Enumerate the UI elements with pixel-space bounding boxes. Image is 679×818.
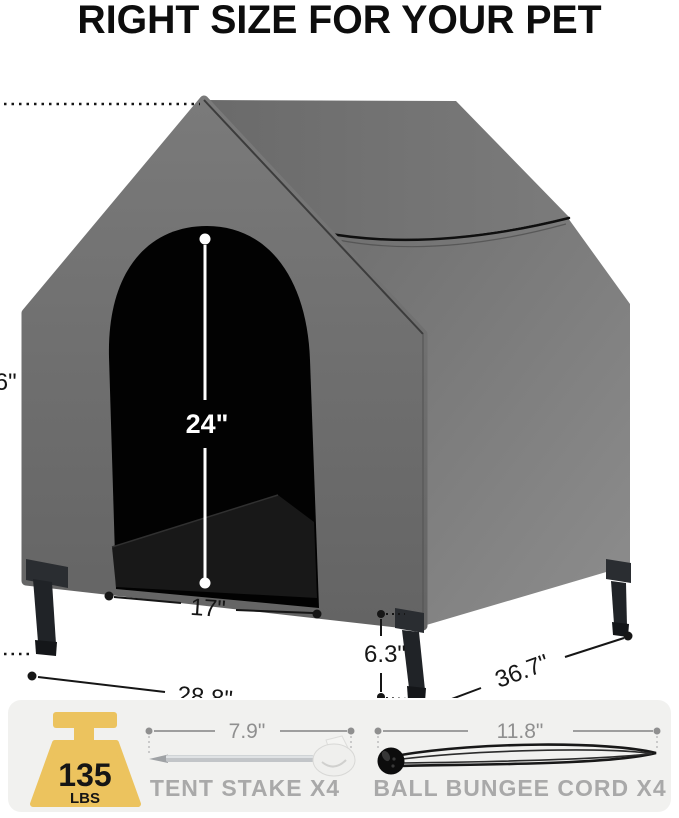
- tent-stake-label: TENT STAKE X4: [150, 775, 340, 801]
- weight-capacity-value: 135: [58, 757, 111, 793]
- bungee-cord-figure: 11.8" BALL BUNGEE CORD X4: [373, 720, 666, 801]
- pet-house: 40.6" 24" 17" 6.3": [0, 100, 633, 699]
- bungee-cord-icon: [378, 745, 657, 775]
- bungee-length: 11.8": [497, 720, 544, 743]
- tent-stake-figure: 7.9" TENT STAKE X4: [146, 720, 356, 801]
- dim-door-width: 17": [189, 594, 226, 623]
- tent-stake-length: 7.9": [229, 720, 266, 743]
- measure-front-width: 28.8": [28, 672, 416, 699]
- weight-capacity-icon: 135 LBS: [33, 712, 138, 807]
- dim-door-height: 24": [186, 409, 229, 439]
- dim-overall-height: 40.6": [0, 369, 17, 396]
- bungee-label: BALL BUNGEE CORD X4: [373, 775, 666, 801]
- dim-front-width: 28.8": [176, 682, 233, 698]
- leg-back-right: [606, 559, 631, 637]
- weight-capacity-unit: LBS: [70, 790, 100, 807]
- page-title: RIGHT SIZE FOR YOUR PET: [7, 0, 672, 44]
- measure-depth: 36.7": [424, 632, 633, 699]
- dim-leg-height: 6.3": [364, 641, 406, 668]
- pet-house-diagram: 40.6" 24" 17" 6.3": [0, 42, 637, 698]
- leg-front-left: [26, 559, 68, 656]
- accessories-panel: 135 LBS 7.9" TENT STAKE X4: [8, 700, 671, 812]
- dim-depth: 36.7": [492, 649, 553, 693]
